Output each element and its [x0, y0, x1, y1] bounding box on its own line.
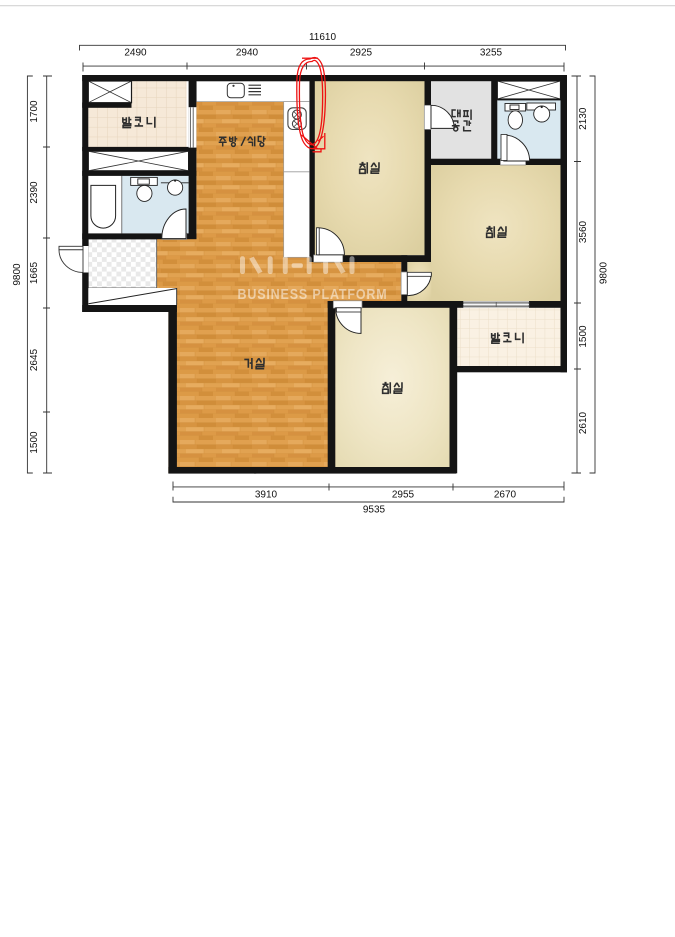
svg-text:3255: 3255: [480, 48, 503, 59]
svg-text:2390: 2390: [29, 181, 40, 204]
svg-text:2925: 2925: [350, 48, 373, 59]
svg-text:2670: 2670: [494, 490, 517, 501]
svg-text:1500: 1500: [578, 325, 589, 348]
svg-text:9800: 9800: [12, 263, 23, 286]
svg-text:BUSINESS PLATFORM: BUSINESS PLATFORM: [238, 286, 388, 303]
svg-text:3910: 3910: [255, 490, 278, 501]
svg-text:2490: 2490: [124, 48, 147, 59]
svg-text:2955: 2955: [392, 490, 415, 501]
svg-text:2940: 2940: [236, 48, 259, 59]
svg-text:11610: 11610: [309, 32, 337, 43]
svg-text:1665: 1665: [29, 261, 40, 284]
svg-text:3560: 3560: [578, 220, 589, 243]
svg-text:9800: 9800: [599, 261, 610, 284]
svg-text:1500: 1500: [29, 431, 40, 454]
svg-text:2130: 2130: [578, 107, 589, 130]
svg-text:2645: 2645: [29, 348, 40, 371]
svg-text:2610: 2610: [578, 411, 589, 434]
svg-text:1700: 1700: [29, 100, 40, 123]
svg-text:9535: 9535: [363, 505, 386, 516]
